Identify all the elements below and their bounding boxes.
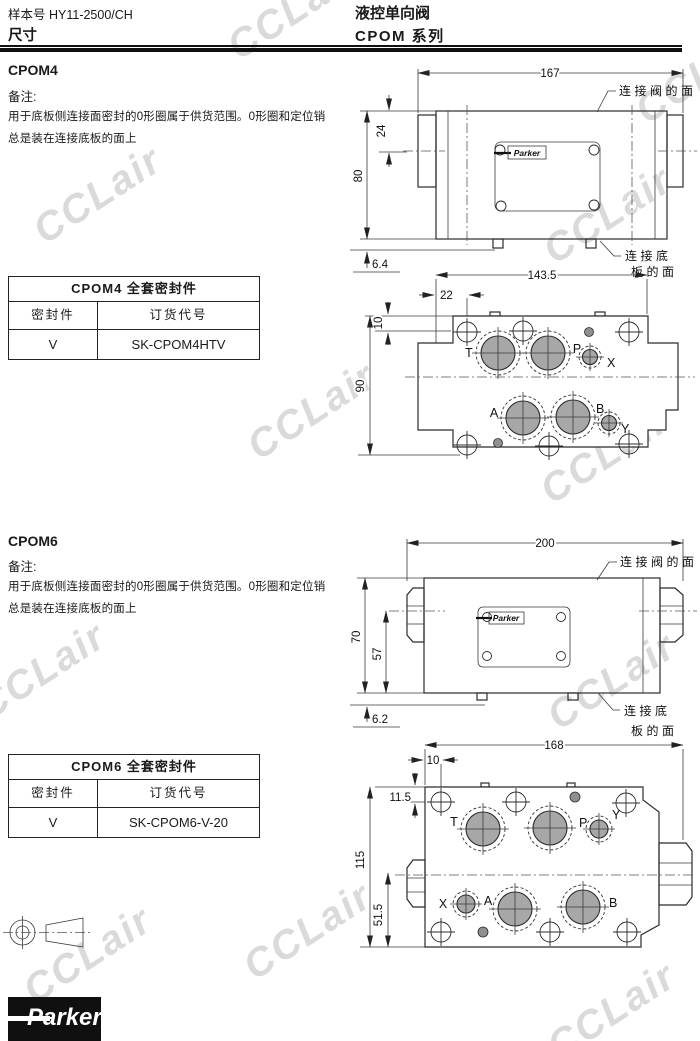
port-label-b: B	[609, 896, 617, 910]
pin-hole	[585, 328, 594, 337]
svg-text:6.2: 6.2	[372, 714, 388, 726]
svg-text:连接阀的面: 连接阀的面	[620, 554, 698, 569]
table-row: V SK-CPOM6-V-20	[9, 808, 259, 837]
section-heading-cpom6: CPOM6	[8, 533, 58, 549]
product-title: 液控单向阀	[355, 2, 430, 23]
svg-text:10: 10	[373, 317, 385, 330]
port-label-y: Y	[612, 808, 621, 822]
note-line-1: 用于底板侧连接面密封的0形圈属于供货范围。0形圈和定位销	[8, 578, 325, 594]
projection-symbol	[0, 903, 100, 965]
svg-text:51.5: 51.5	[373, 904, 385, 926]
header-rule-thin	[0, 45, 682, 47]
watermark-text: CCLair	[220, 0, 365, 69]
label-valve-face: 连接阀的面	[597, 83, 697, 112]
port-label-p: P	[573, 342, 581, 356]
nameplate-brand: Parker	[493, 613, 520, 623]
hex-end-cap	[659, 843, 692, 905]
column-header-seal: 密封件	[9, 780, 98, 807]
port-label-a: A	[490, 406, 499, 420]
nameplate: Parker	[494, 142, 600, 211]
port-label-x: X	[439, 897, 448, 911]
section-heading-cpom4: CPOM4	[8, 62, 58, 78]
cpom4-top-view-drawing: 143.5 22 10 90	[345, 265, 700, 465]
header-rule-thick	[0, 48, 682, 52]
note-line-1: 用于底板侧连接面密封的0形圈属于供货范围。0形圈和定位销	[8, 108, 325, 124]
note-line-2: 总是装在连接底板的面上	[8, 600, 137, 616]
port-label-t: T	[450, 815, 458, 829]
seal-table-cpom6: CPOM6 全套密封件 密封件 订货代号 V SK-CPOM6-V-20	[8, 754, 260, 838]
svg-text:连接底: 连接底	[625, 248, 672, 263]
dim-center-offset-51-5: 51.5	[373, 873, 388, 947]
svg-text:168: 168	[544, 740, 563, 752]
label-subplate-face: 连接底 板的面	[598, 693, 678, 738]
svg-text:11.5: 11.5	[389, 792, 411, 804]
hex-end-cap	[407, 860, 425, 907]
svg-text:24: 24	[376, 124, 388, 137]
datasheet-page: CCLair CCLair CCLair CCLair CCLair CCLai…	[0, 0, 700, 1041]
note-label: 备注:	[8, 86, 36, 105]
locating-pin	[477, 693, 487, 700]
pin-hole	[478, 927, 488, 937]
pin-hole	[494, 439, 503, 448]
note-line-2: 总是装在连接底板的面上	[8, 130, 137, 146]
doc-number: 样本号 HY11-2500/CH	[8, 4, 133, 23]
svg-text:115: 115	[355, 851, 367, 869]
port-label-b: B	[596, 402, 604, 416]
parker-logo-text: Parker	[27, 1004, 102, 1032]
svg-text:连接阀的面: 连接阀的面	[619, 83, 697, 98]
svg-text:143.5: 143.5	[528, 270, 557, 282]
cell-seal-type: V	[9, 330, 98, 359]
cell-seal-type: V	[9, 808, 98, 837]
label-valve-face: 连接阀的面	[597, 554, 698, 580]
valve-body-outline	[403, 105, 697, 248]
nameplate: Parker	[476, 607, 570, 667]
parker-logo: Parker	[8, 997, 101, 1041]
locating-pin	[568, 693, 578, 700]
svg-text:22: 22	[440, 290, 453, 302]
dim-port-offset-10: 10	[365, 302, 453, 345]
svg-text:70: 70	[351, 631, 363, 644]
dim-pin-6-2: 6.2	[350, 705, 485, 727]
hex-end-cap	[407, 588, 424, 642]
seal-table-cpom4: CPOM4 全套密封件 密封件 订货代号 V SK-CPOM4HTV	[8, 276, 260, 360]
seal-table-title: CPOM6 全套密封件	[9, 755, 259, 780]
locating-pin	[586, 239, 596, 248]
svg-text:167: 167	[540, 68, 559, 80]
nameplate-brand: Parker	[514, 148, 541, 158]
seal-table-title: CPOM4 全套密封件	[9, 277, 259, 302]
valve-body-outline	[405, 312, 695, 447]
svg-text:90: 90	[355, 380, 367, 393]
locating-pin	[493, 239, 503, 248]
watermark-text: CCLair	[0, 614, 114, 730]
column-header-code: 订货代号	[98, 302, 259, 329]
svg-text:200: 200	[535, 538, 554, 550]
svg-text:80: 80	[353, 170, 365, 183]
cell-order-code: SK-CPOM4HTV	[98, 330, 259, 359]
dim-height-80: 80	[353, 111, 436, 239]
port-label-t: T	[465, 346, 473, 360]
port-label-y: Y	[621, 422, 630, 436]
column-header-code: 订货代号	[98, 780, 259, 807]
port-label-a: A	[484, 894, 493, 908]
cpom4-side-view-drawing: 167 Parker 24	[345, 55, 700, 280]
port-label-x: X	[607, 356, 616, 370]
dim-top-offset-24: 24	[376, 95, 407, 167]
column-header-seal: 密封件	[9, 302, 98, 329]
watermark-text: CCLair	[540, 954, 685, 1041]
table-row: V SK-CPOM4HTV	[9, 330, 259, 359]
note-label: 备注:	[8, 556, 36, 575]
dim-height-70: 70	[351, 578, 424, 693]
dim-height-115: 115	[355, 787, 425, 947]
pin-hole	[570, 792, 580, 802]
dim-center-height-57: 57	[372, 611, 386, 693]
svg-text:连接底: 连接底	[624, 703, 671, 718]
hex-end-cap	[660, 588, 683, 642]
cpom6-top-view-drawing: 168 10 11.5 115 51.5	[345, 735, 700, 963]
svg-text:10: 10	[427, 755, 440, 767]
cell-order-code: SK-CPOM6-V-20	[98, 808, 259, 837]
page-title: 尺寸	[8, 24, 37, 45]
svg-text:57: 57	[372, 648, 384, 661]
valve-body-outline	[389, 578, 697, 700]
watermark-text: CCLair	[26, 138, 171, 254]
series-title: CPOM 系列	[355, 25, 445, 46]
cpom6-side-view-drawing: 200 Parker 70	[345, 525, 700, 750]
